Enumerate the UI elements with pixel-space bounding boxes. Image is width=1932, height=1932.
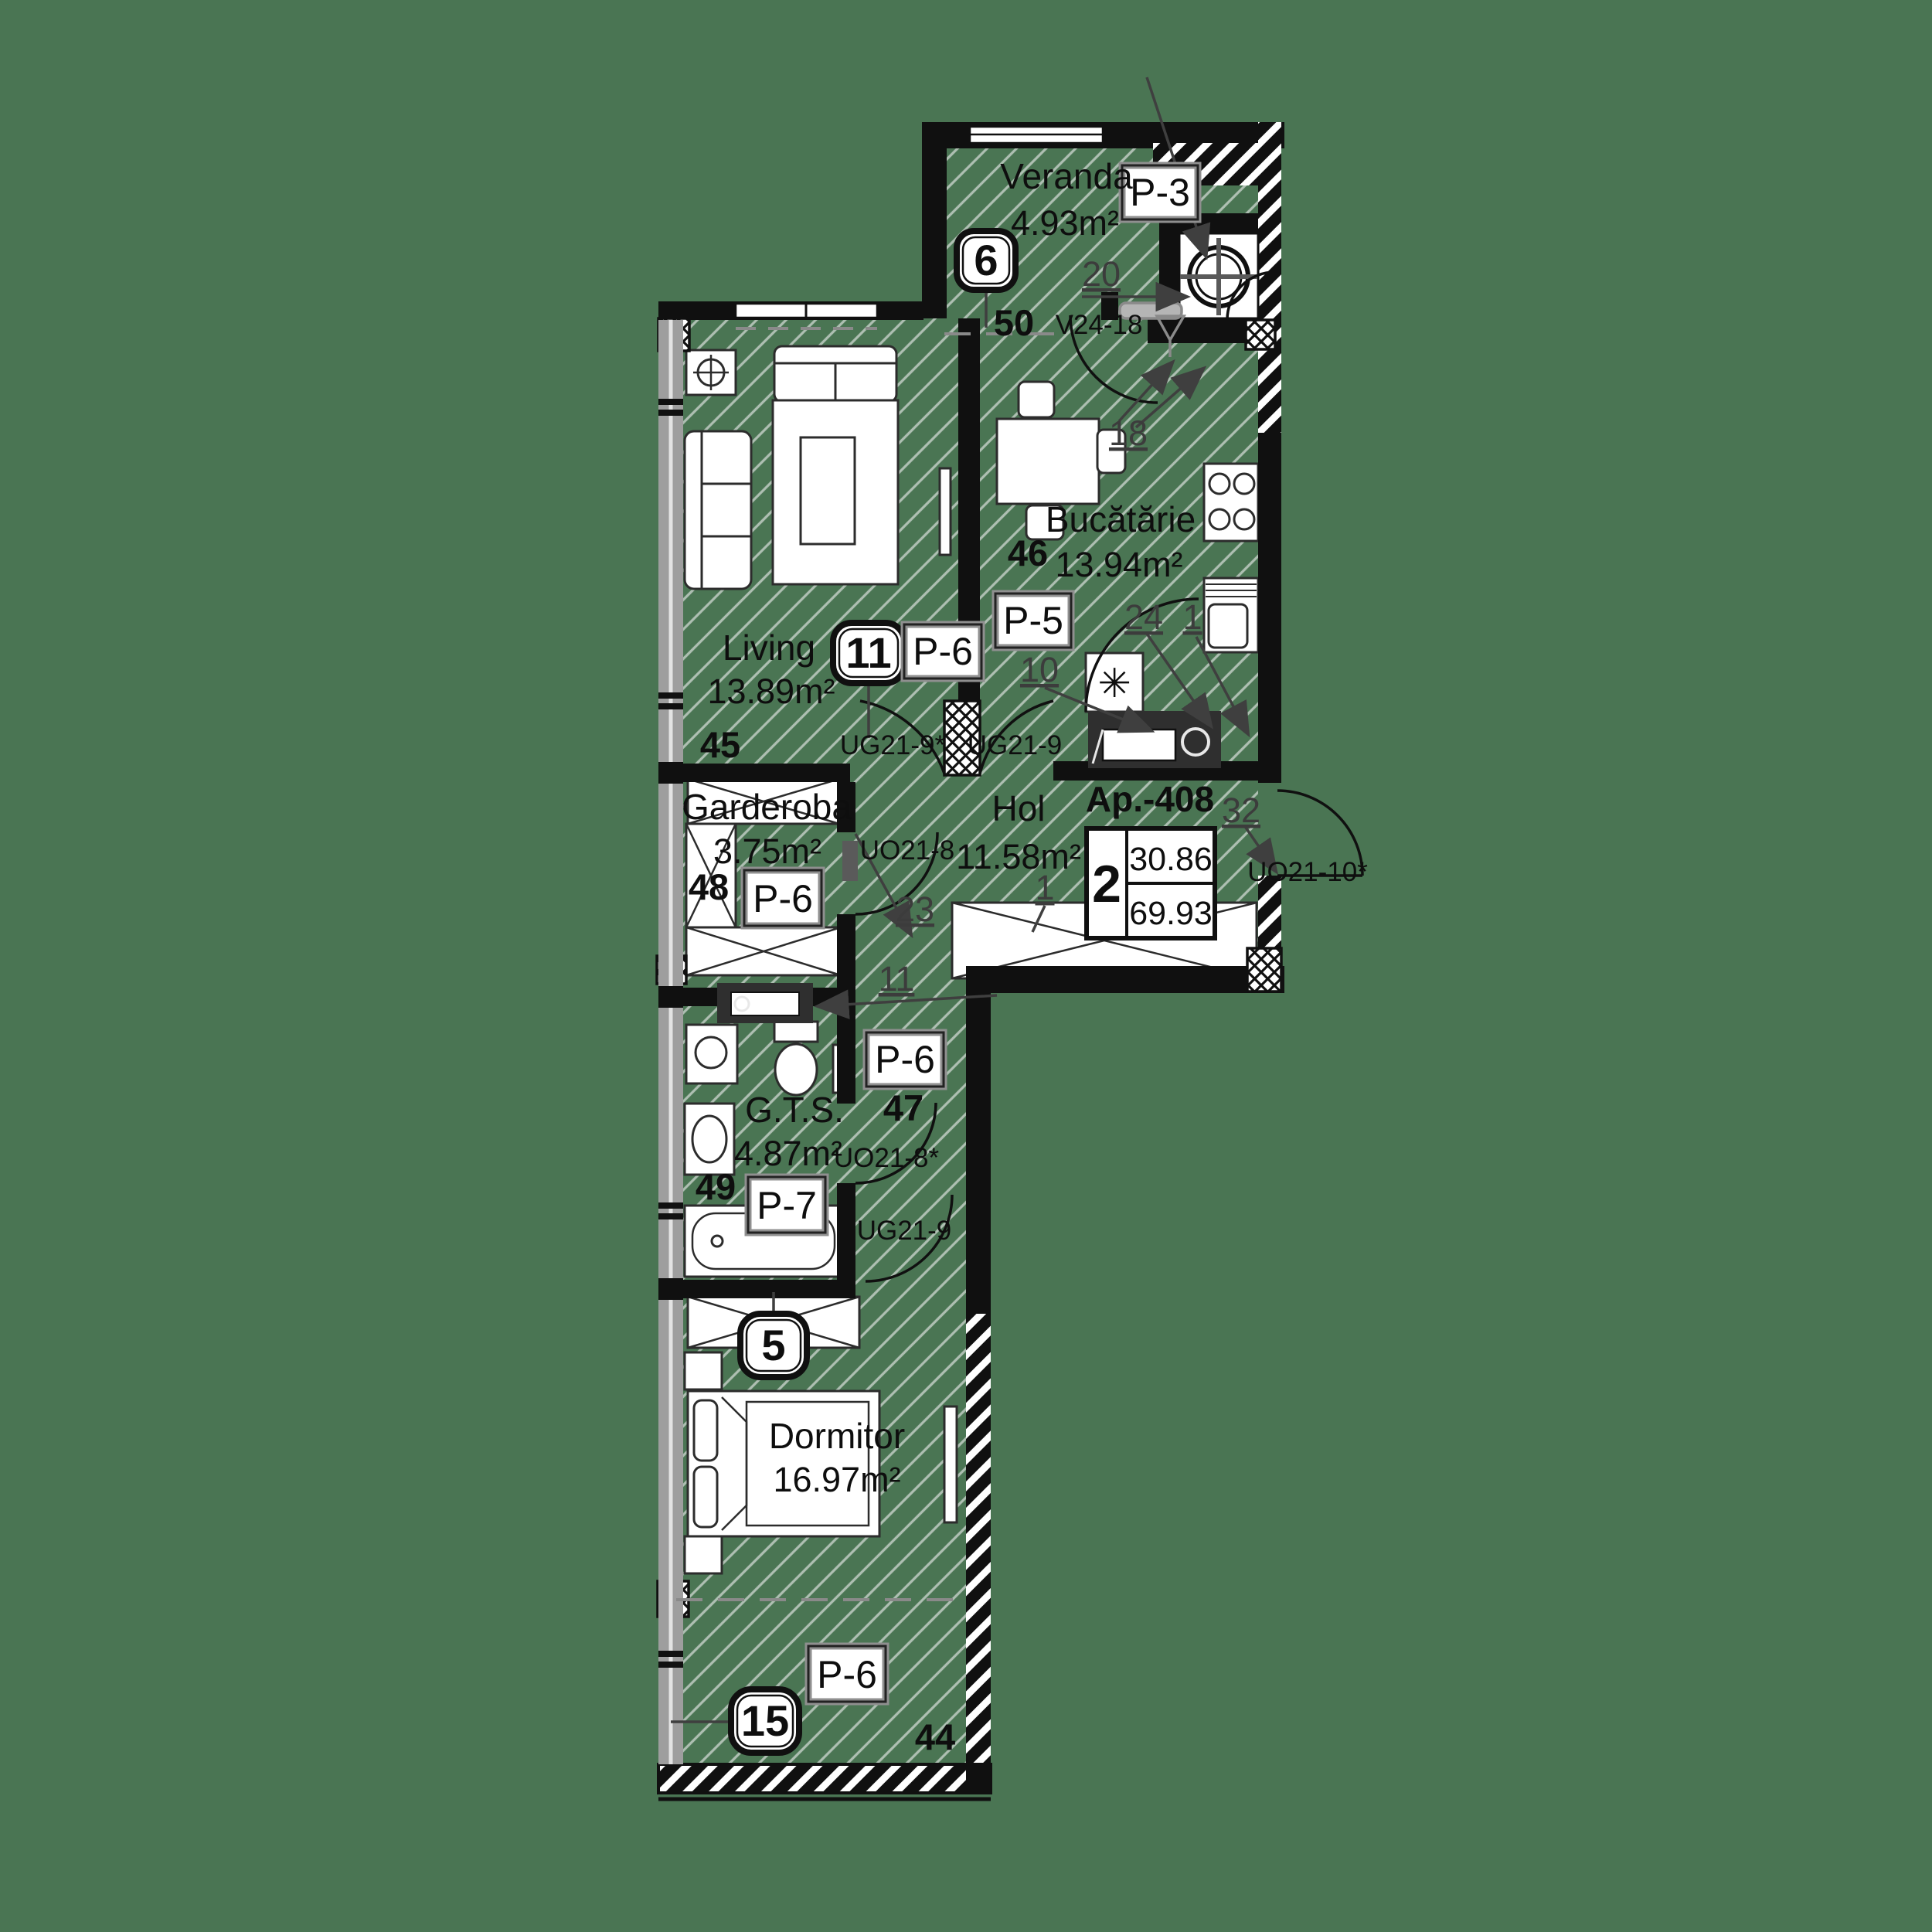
wall-gts-right-b	[837, 1183, 855, 1281]
pillow	[694, 1467, 717, 1527]
dining-table	[997, 419, 1099, 504]
panel-garderoba-label: P-6	[753, 877, 813, 920]
num-45: 45	[700, 724, 740, 765]
door-hinge-garderoba	[842, 841, 858, 881]
room-area-bucatarie: 13.94m²	[1055, 545, 1182, 584]
badge-balcon-number: 15	[741, 1696, 789, 1745]
badge-dormitor: 5	[740, 1314, 807, 1377]
toilet-bowl	[775, 1044, 817, 1095]
room-label-garderoba: Garderoba	[682, 787, 852, 827]
badge-veranda: 6	[957, 231, 1015, 290]
room-label-dormitor: Dormitor	[769, 1416, 905, 1456]
num-49: 49	[696, 1166, 736, 1207]
door-label-uo21-8: UO21-8	[860, 835, 955, 866]
panel-bucatarie-label: P-5	[1003, 599, 1063, 642]
badge-balcon: 15	[731, 1689, 799, 1753]
apartment-rooms-count: 2	[1092, 855, 1121, 913]
room-label-living: Living	[723, 628, 815, 668]
apartment-table: Ap.-408 2 30.86 69.93	[1086, 779, 1215, 938]
door-label-uo21-8s: UO21-8*	[834, 1143, 940, 1173]
kitchen-sink	[1204, 578, 1258, 652]
panel-balcon-label: P-6	[817, 1653, 877, 1696]
panel-living-label: P-6	[913, 630, 973, 673]
room-area-garderoba: 3.75m²	[713, 832, 821, 871]
panel-gts: P-7	[748, 1177, 825, 1233]
room-area-living: 13.89m²	[707, 672, 835, 711]
living-shelf	[940, 468, 951, 555]
panel-balcon: P-6	[808, 1646, 886, 1702]
wall-gts-bottom	[683, 1280, 855, 1298]
wall-garderoba-right-b	[837, 914, 855, 1007]
column	[1247, 948, 1281, 992]
ref-32: 32	[1222, 791, 1260, 830]
badge-living: 11	[833, 623, 904, 683]
sofa	[685, 431, 751, 589]
room-area-gts: 4.87m²	[734, 1134, 842, 1173]
num-48: 48	[689, 866, 729, 907]
floor-plan: 6 11 5 15 P-3 P-5	[0, 0, 1932, 1932]
corner-bottom-right	[966, 1764, 991, 1793]
kitchen-counter-inner	[1103, 730, 1175, 760]
ref-18: 18	[1109, 413, 1148, 453]
room-area-hol: 11.58m²	[956, 837, 1081, 876]
badge-living-number: 11	[845, 628, 891, 677]
wall-veranda-left	[922, 122, 947, 318]
badge-veranda-number: 6	[974, 236, 998, 284]
wall-hol-bottom	[966, 966, 1284, 993]
chair-top	[1019, 382, 1054, 417]
num-47: 47	[883, 1087, 923, 1128]
num-44: 44	[915, 1716, 955, 1757]
num-46: 46	[1008, 532, 1048, 573]
ref-11: 11	[879, 959, 915, 998]
wall-bottom	[658, 1764, 991, 1793]
ref-10: 10	[1020, 650, 1059, 689]
room-area-dormitor: 16.97m²	[773, 1460, 900, 1499]
panel-veranda-label: P-3	[1130, 171, 1190, 214]
ref-1-hol: 1	[1035, 868, 1054, 907]
apartment-living-area: 30.86	[1129, 841, 1213, 878]
ref-24: 24	[1124, 597, 1163, 637]
room-label-hol: Hol	[992, 788, 1045, 828]
door-label-ug21-9: UG21-9	[968, 730, 1063, 760]
panel-corridor: P-6	[866, 1032, 944, 1087]
coffee-table	[801, 437, 855, 544]
nightstand-top	[685, 1352, 722, 1389]
panel-corridor-label: P-6	[875, 1038, 935, 1081]
pillow	[694, 1400, 717, 1461]
room-label-veranda: Veranda	[1000, 156, 1133, 196]
fridge-symbol-icon: ✳	[1097, 662, 1131, 706]
ref-1-kitchen: 1	[1182, 597, 1202, 637]
panel-garderoba: P-6	[744, 870, 821, 926]
panel-living: P-6	[904, 624, 981, 679]
toilet-tank	[774, 1022, 818, 1042]
wall-right-mid	[1258, 433, 1281, 783]
panel-gts-label: P-7	[757, 1184, 817, 1227]
ref-23: 23	[896, 889, 934, 929]
num-50: 50	[994, 302, 1034, 343]
wall-lower-right-b	[966, 1314, 991, 1793]
wall-lower-right-a	[966, 993, 991, 1314]
washing-machine	[686, 1025, 737, 1083]
window-code-veranda: V24-18	[1056, 310, 1143, 340]
badge-dormitor-number: 5	[761, 1321, 785, 1369]
panel-veranda: P-3	[1122, 165, 1198, 219]
undercounter-inner	[731, 992, 799, 1015]
tv	[944, 1406, 957, 1522]
door-label-uo21-10: UO21-10*	[1247, 857, 1368, 887]
column	[1246, 320, 1275, 349]
room-label-bucatarie: Bucătărie	[1046, 499, 1196, 539]
door-label-ug21-9s: UG21-9*	[840, 730, 946, 760]
door-label-corridor: UG21-9	[857, 1216, 952, 1246]
apartment-title: Ap.-408	[1086, 779, 1214, 819]
panel-bucatarie: P-5	[995, 594, 1071, 648]
nightstand-bottom	[685, 1536, 722, 1573]
room-label-gts: G.T.S.	[745, 1090, 844, 1130]
wall-garderoba-top	[683, 764, 850, 782]
apartment-total-area: 69.93	[1129, 895, 1213, 932]
ref-20: 20	[1082, 254, 1121, 294]
room-area-veranda: 4.93m²	[1011, 203, 1119, 243]
